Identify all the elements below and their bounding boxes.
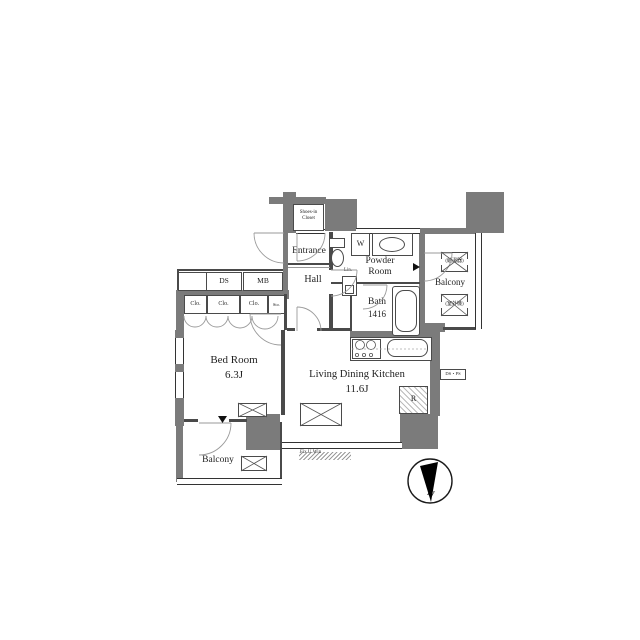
- service-cell: [178, 272, 206, 291]
- front-door-arc: [254, 233, 284, 263]
- wall-segment: [246, 414, 280, 450]
- floor-plan: DS MB Clo. Clo. Clo. Sto. Shoes-in Close…: [0, 0, 640, 640]
- wall-segment: [325, 199, 357, 231]
- entrance-label: Entrance: [286, 246, 332, 257]
- hall-label: Hall: [295, 274, 331, 285]
- ds-label: DS: [206, 277, 242, 285]
- balcony-left-rail: [177, 478, 282, 485]
- threshold-marker: [218, 416, 227, 423]
- compass-north-label: N: [422, 485, 439, 500]
- balcony-left-unit-box: [241, 456, 267, 471]
- wash-basin-bowl: [379, 237, 405, 252]
- closet-label: Clo.: [207, 301, 240, 308]
- wall-line: [317, 328, 331, 331]
- water-heater-label: (給湯器): [439, 259, 470, 265]
- balcony-right-rail: [475, 233, 482, 329]
- bathtub-inner: [395, 290, 417, 332]
- bedroom-storage-box: [238, 403, 267, 417]
- wall-segment: [269, 197, 326, 204]
- ldk-storage-box: [300, 403, 342, 426]
- bath-label: Bath: [357, 297, 397, 308]
- stove: [352, 339, 381, 359]
- shoes-closet-label: Shoes-in Closet: [293, 210, 324, 221]
- powder-room-label: Powder Room: [352, 256, 408, 277]
- fix-window-label: Fix U.Win: [300, 450, 350, 456]
- bedroom-size-label: 6.3J: [202, 369, 266, 381]
- toilet-bowl: [331, 249, 344, 267]
- toilet-cistern: [329, 238, 345, 248]
- balcony-left-door-arc: [199, 423, 231, 455]
- closet-door-arc: [252, 316, 278, 329]
- wall-segment: [176, 290, 184, 334]
- wall-line: [287, 328, 295, 331]
- fridge-label: R: [399, 395, 428, 404]
- plan-linework: [0, 0, 640, 640]
- shoes-closet-line2: Closet: [293, 216, 324, 222]
- wall-line: [280, 422, 282, 480]
- entrance-step-line2: [288, 267, 330, 268]
- wall-segment: [176, 426, 183, 482]
- bedroom-window: [175, 338, 184, 364]
- bath-size-label: 1416: [357, 309, 397, 319]
- ldk-fix-window: [282, 442, 402, 449]
- wall-line: [329, 294, 333, 330]
- wall-segment: [420, 228, 477, 234]
- entrance-step-line: [288, 263, 330, 265]
- washer-label: W: [351, 240, 370, 249]
- wall-segment: [466, 192, 504, 233]
- closet-label: Clo.: [184, 301, 207, 308]
- closet-door-arc: [184, 316, 206, 327]
- balcony-right-label: Balcony: [428, 277, 472, 287]
- closet-label: Clo.: [240, 301, 268, 308]
- wall-segment: [400, 414, 438, 449]
- wall-line: [184, 419, 198, 422]
- linen-cabinet-inner: [345, 285, 354, 294]
- balcony-rail-line: [443, 327, 476, 330]
- powder-line2: Room: [352, 267, 408, 278]
- closet-door-arc: [228, 316, 252, 328]
- wall-line: [229, 419, 247, 422]
- ldk-label: Living Dining Kitchen: [297, 369, 417, 381]
- powder-line1: Powder: [352, 256, 408, 267]
- wall-line: [281, 330, 285, 415]
- mb-label: MB: [243, 277, 283, 285]
- linen-label: Lin.: [337, 268, 359, 274]
- storage-label: Sto.: [268, 302, 285, 307]
- bedroom-door-arc: [250, 314, 281, 345]
- wall-line: [177, 269, 283, 271]
- bedroom-label: Bed Room: [202, 354, 266, 366]
- kitchen-sink: [387, 339, 428, 357]
- balcony-left-label: Balcony: [196, 455, 240, 466]
- closet-door-arc: [206, 316, 228, 327]
- bedroom-window: [175, 372, 184, 398]
- wall-line: [331, 328, 352, 331]
- outdoor-unit-label: (室外機): [439, 302, 470, 308]
- ds-ps-label: DS・PS: [440, 371, 466, 376]
- ldk-size-label: 11.6J: [297, 383, 417, 395]
